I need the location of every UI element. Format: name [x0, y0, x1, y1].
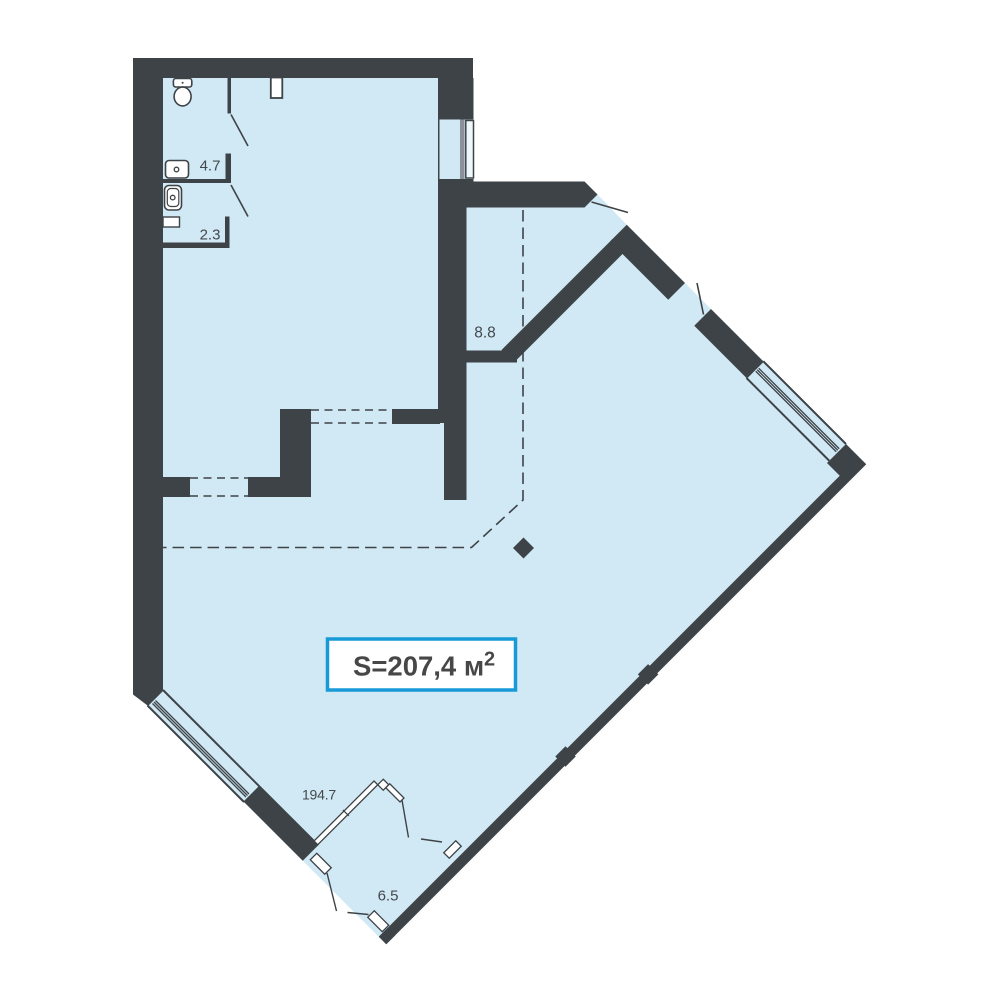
svg-text:4.7: 4.7 [200, 158, 221, 175]
svg-text:194.7: 194.7 [302, 787, 336, 803]
svg-text:S=207,4 м: S=207,4 м [353, 651, 484, 682]
svg-text:2: 2 [484, 649, 495, 671]
svg-text:8.8: 8.8 [474, 325, 496, 342]
svg-text:6.5: 6.5 [378, 888, 399, 905]
svg-text:2.3: 2.3 [200, 227, 221, 244]
